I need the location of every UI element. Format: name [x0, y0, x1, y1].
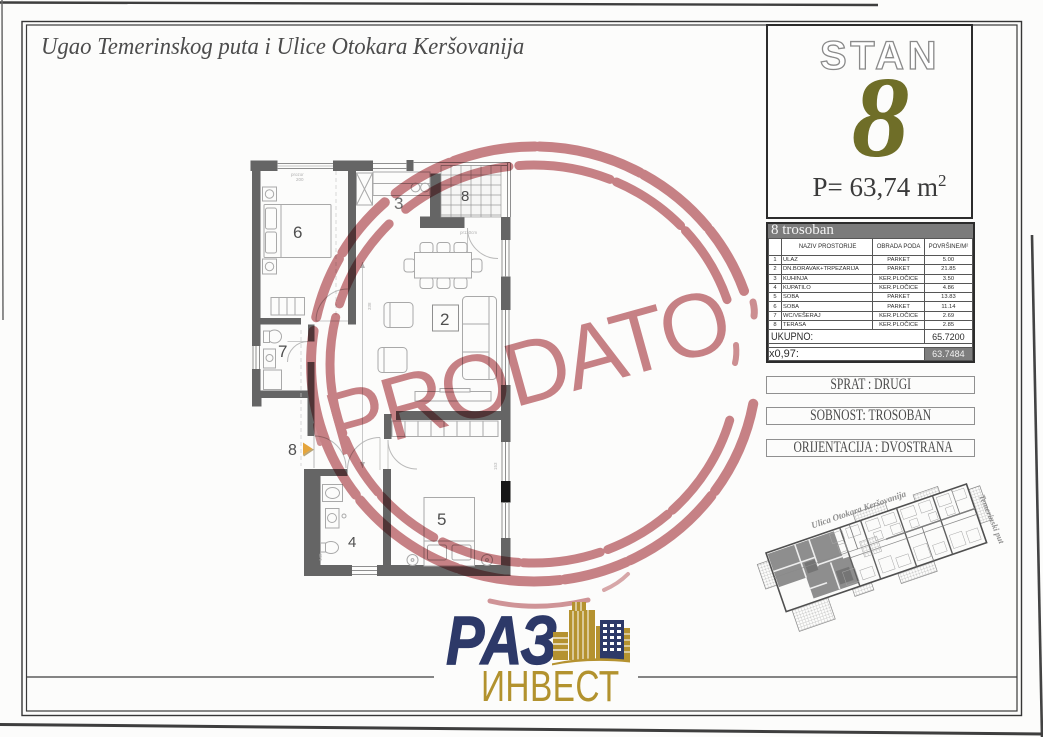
- svg-text:200: 200: [296, 177, 304, 182]
- svg-text:5: 5: [437, 510, 446, 529]
- svg-text:2: 2: [440, 310, 449, 329]
- svg-text:PRODATO: PRODATO: [315, 270, 739, 477]
- svg-text:6: 6: [293, 223, 302, 242]
- svg-text:338: 338: [367, 302, 372, 310]
- svg-text:4: 4: [348, 534, 356, 551]
- svg-text:140: 140: [318, 553, 323, 561]
- svg-text:8: 8: [288, 442, 297, 459]
- svg-text:7: 7: [278, 342, 287, 361]
- svg-text:8: 8: [461, 188, 469, 205]
- svg-text:153: 153: [493, 462, 498, 470]
- svg-text:pr110cm: pr110cm: [460, 230, 477, 235]
